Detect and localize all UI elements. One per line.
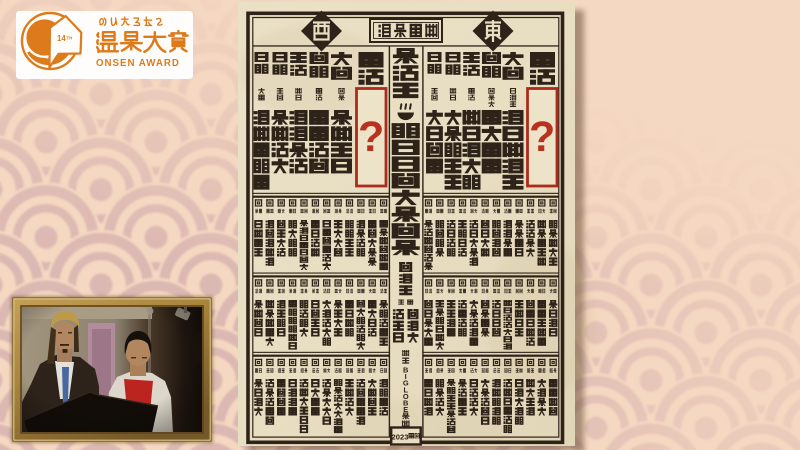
- svg-text:?: ?: [358, 113, 384, 161]
- svg-text:ONSEN AWARD: ONSEN AWARD: [96, 58, 180, 69]
- svg-text:TH: TH: [67, 36, 73, 41]
- svg-text:2023: 2023: [392, 433, 409, 442]
- svg-text:?: ?: [529, 113, 555, 161]
- svg-text:14: 14: [57, 34, 66, 43]
